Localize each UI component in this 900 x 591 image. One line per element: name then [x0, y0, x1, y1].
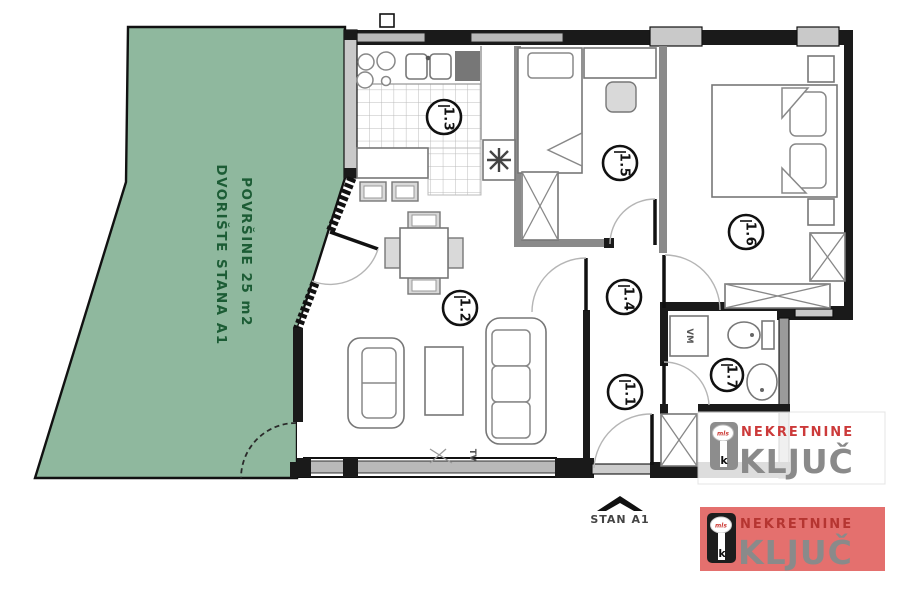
coffee-table — [425, 347, 463, 415]
window-kitchen — [353, 33, 425, 42]
left-wall-lower — [293, 328, 303, 422]
sofa — [486, 318, 546, 444]
room-label-bedroom1: 1.5 — [603, 146, 637, 180]
room-label-hall: 1.4 — [607, 280, 641, 314]
tv-label: TV — [467, 449, 477, 462]
key-icon: mls k — [707, 513, 736, 563]
washing-machine-label: VM — [684, 328, 694, 343]
boiler-symbol — [483, 140, 515, 180]
brand-line2: KLJUČ — [738, 532, 853, 572]
pillow — [528, 53, 573, 78]
room-label-living: 1.2 — [443, 291, 477, 325]
nightstand — [808, 56, 834, 82]
entrance-arrow-icon — [597, 496, 643, 511]
wall-pillar-top2 — [797, 27, 839, 46]
window-bedroom1 — [471, 33, 563, 42]
entrance-label: STAN A1 — [590, 513, 649, 526]
vent-symbol — [380, 14, 394, 27]
wardrobe — [810, 233, 845, 281]
sink — [747, 364, 777, 400]
watermark-logo-top: mls k NEKRETNINE KLJUČ — [698, 412, 885, 484]
svg-text:k: k — [720, 454, 728, 467]
svg-text:mls: mls — [715, 523, 727, 530]
svg-text:1.7: 1.7 — [724, 365, 739, 390]
nightstand — [808, 199, 834, 225]
wardrobe — [725, 284, 830, 308]
svg-text:1.3: 1.3 — [441, 107, 456, 132]
floor-plan-page: DVORIŠTE STANA A1 POVRŠINE 25 m2 — [0, 0, 900, 591]
svg-text:1.2: 1.2 — [457, 298, 472, 323]
desk — [584, 48, 656, 78]
kitchen-left-wall — [344, 30, 357, 178]
svg-text:1.4: 1.4 — [621, 287, 636, 312]
courtyard-label-line1: DVORIŠTE STANA A1 — [213, 164, 231, 345]
brand-line1: NEKRETNINE — [741, 425, 854, 440]
svg-text:mls: mls — [717, 431, 729, 438]
room-label-bedroom2: 1.6 — [729, 215, 763, 249]
entrance-door — [592, 464, 652, 474]
entry-furniture — [661, 414, 697, 466]
armchair — [348, 338, 404, 428]
svg-text:1.5: 1.5 — [617, 153, 632, 178]
svg-text:1.1: 1.1 — [622, 382, 637, 407]
brand-line1: NEKRETNINE — [740, 517, 853, 532]
svg-text:k: k — [718, 547, 726, 560]
courtyard-label-line2: POVRŠINE 25 m2 — [238, 177, 256, 327]
floor-plan-canvas: DVORIŠTE STANA A1 POVRŠINE 25 m2 — [0, 0, 900, 591]
room-label-kitchen: 1.3 — [427, 100, 461, 134]
wall-pillar-top1 — [650, 27, 702, 46]
toilet — [728, 321, 774, 349]
wardrobe — [522, 172, 558, 240]
brand-line2: KLJUČ — [739, 441, 854, 481]
watermark-logo-bottom: mls k NEKRETNINE KLJUČ — [700, 507, 885, 572]
entrance-marker: STAN A1 — [590, 496, 649, 526]
room-label-bathroom: 1.7 — [711, 359, 743, 391]
wardrobe — [661, 414, 697, 466]
desk-chair — [606, 82, 636, 112]
washing-machine: VM — [670, 316, 708, 356]
kitchen-island — [357, 148, 428, 201]
key-icon: mls k — [710, 422, 738, 470]
svg-text:1.6: 1.6 — [743, 222, 758, 247]
room-label-entry: 1.1 — [608, 375, 642, 409]
fridge — [455, 51, 480, 81]
